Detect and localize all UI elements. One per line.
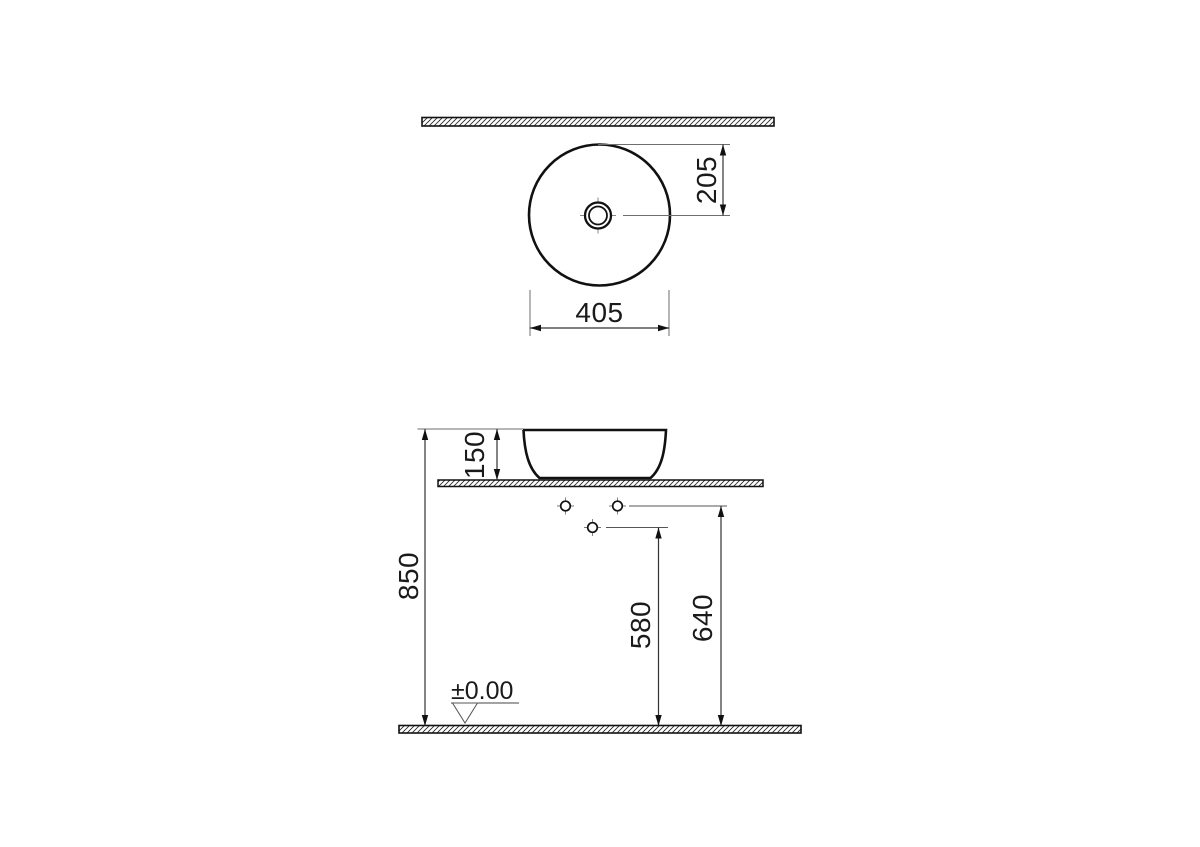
drawing-canvas: 205 405 150: [0, 0, 1200, 847]
dimension-label-580: 580: [625, 601, 656, 649]
arrow-left-icon: [530, 325, 541, 331]
dimension-850: 850: [393, 429, 428, 726]
arrow-up-icon: [422, 429, 428, 440]
arrow-down-icon: [655, 715, 661, 726]
arrow-down-icon: [494, 469, 500, 480]
dimension-label-150: 150: [459, 431, 490, 479]
top-view: 205 405: [422, 118, 774, 337]
dimension-label-850: 850: [393, 552, 424, 600]
arrow-up-icon: [655, 528, 661, 539]
arrow-up-icon: [718, 506, 724, 517]
dimension-label-205: 205: [691, 156, 722, 204]
dimension-label-405: 405: [575, 297, 623, 328]
arrow-up-icon: [494, 429, 500, 440]
supply-point-right-icon: [609, 498, 626, 515]
floor-hatched-bar: [399, 726, 801, 734]
dimension-405: 405: [530, 290, 669, 336]
front-view: 150 850: [393, 429, 801, 733]
basin-profile: [523, 430, 666, 478]
arrow-down-icon: [720, 205, 726, 216]
connection-points: [557, 498, 626, 537]
countertop-edge-hatched-bar: [422, 118, 774, 127]
arrow-down-icon: [422, 715, 428, 726]
countertop-hatched-bar: [438, 480, 763, 487]
dimension-label-640: 640: [687, 594, 718, 642]
arrow-up-icon: [720, 145, 726, 156]
arrow-down-icon: [718, 715, 724, 726]
drain-outlet-point-icon: [584, 519, 601, 536]
washbasin-technical-drawing: 205 405 150: [0, 0, 1200, 847]
arrow-right-icon: [658, 325, 669, 331]
datum-triangle-icon: [453, 703, 478, 723]
dimension-580: 580: [606, 528, 668, 727]
floor-datum: ±0.00: [451, 677, 519, 723]
supply-point-left-icon: [557, 498, 574, 515]
floor-level-label: ±0.00: [451, 677, 513, 705]
dimension-150: 150: [459, 429, 500, 480]
